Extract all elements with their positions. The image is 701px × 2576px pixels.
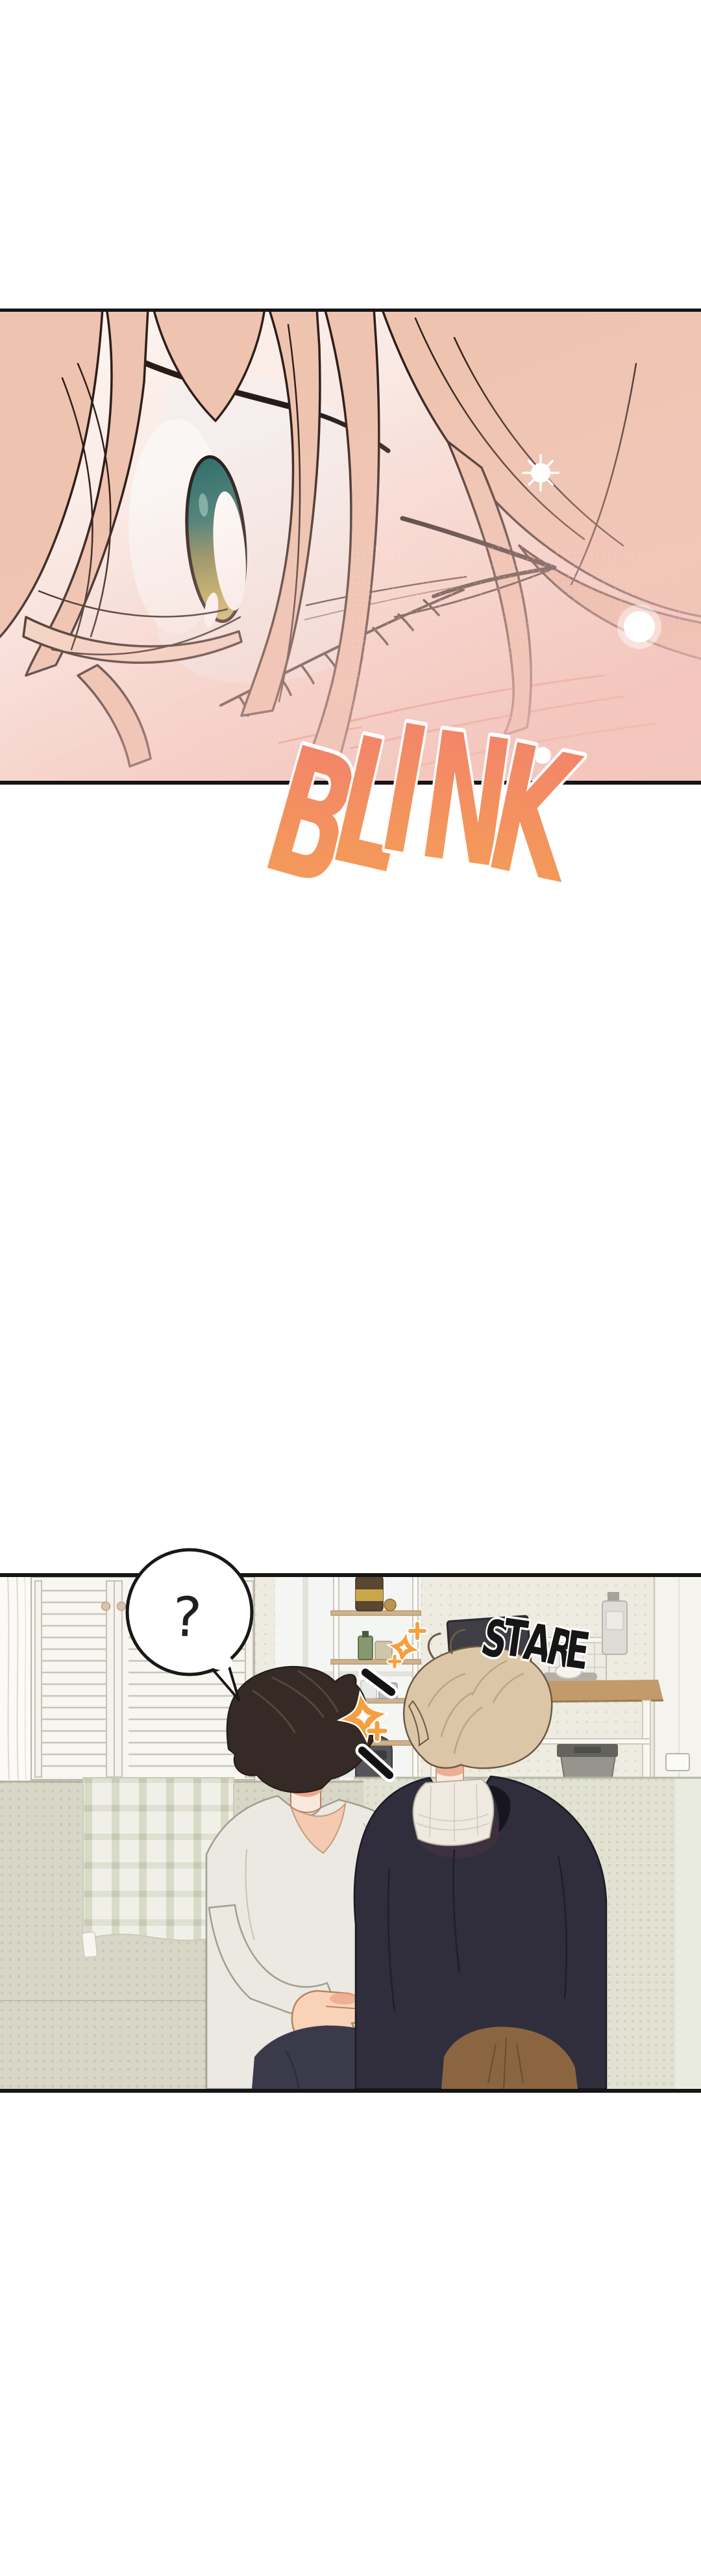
blanket-tag [82,1932,97,1958]
blink-sfx: B L I N K [221,716,558,930]
eye-illustration [0,312,701,781]
room-panel: S T A R E [0,1544,701,2099]
door-knob [117,1602,126,1611]
water-bottle [602,1592,627,1654]
panel-border-bottom [0,2089,701,2093]
power-outlet [666,1754,689,1771]
question-mark-text: ? [171,1585,203,1650]
turtleneck [413,1779,494,1845]
blush-overlay [0,312,701,781]
curtain [0,1577,31,1781]
door-knob [102,1602,110,1611]
window-wall-right [654,1577,701,1780]
eye-closeup-panel [0,309,701,785]
webtoon-page: B L I N K [0,0,701,2576]
panel-border-top [0,1573,701,1577]
trash-bin [557,1744,618,1781]
